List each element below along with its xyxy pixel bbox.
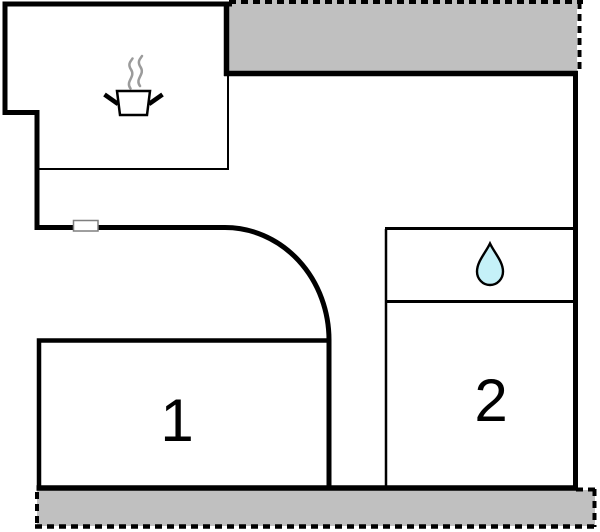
floor-plan-canvas: 1 2 (0, 0, 600, 532)
terrace-top-right-area (229, 0, 577, 71)
pot-body (117, 91, 150, 115)
terrace-bottom-area (37, 490, 595, 526)
plan-background (0, 0, 600, 532)
terrace-top-right (229, 0, 583, 74)
terrace-bottom (35, 489, 597, 528)
room1-label: 1 (160, 387, 193, 454)
floor-plan-page: 1 2 (0, 0, 600, 532)
room2-label: 2 (474, 367, 507, 434)
window-icon (74, 221, 99, 232)
